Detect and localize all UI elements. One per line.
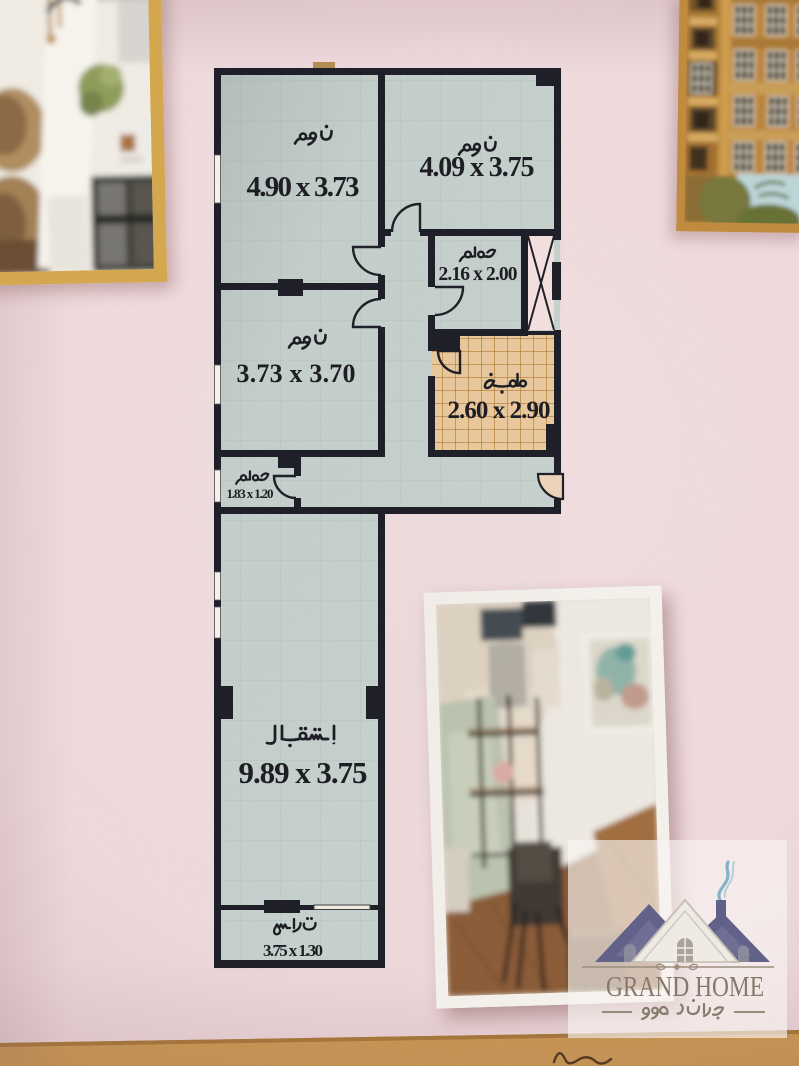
svg-text:GRAND HOME: GRAND HOME <box>606 971 764 1003</box>
svg-text:3.75 x 1.30: 3.75 x 1.30 <box>263 941 323 960</box>
svg-text:9.89 x 3.75: 9.89 x 3.75 <box>239 755 368 790</box>
svg-text:2.16 x 2.00: 2.16 x 2.00 <box>439 264 518 285</box>
svg-text:4.90 x 3.73: 4.90 x 3.73 <box>247 171 360 203</box>
svg-text:4.09 x 3.75: 4.09 x 3.75 <box>420 152 535 183</box>
svg-text:1.83 x 1.20: 1.83 x 1.20 <box>227 486 274 501</box>
svg-text:3.73 x 3.70: 3.73 x 3.70 <box>237 359 356 388</box>
svg-text:2.60 x 2.90: 2.60 x 2.90 <box>448 397 551 424</box>
